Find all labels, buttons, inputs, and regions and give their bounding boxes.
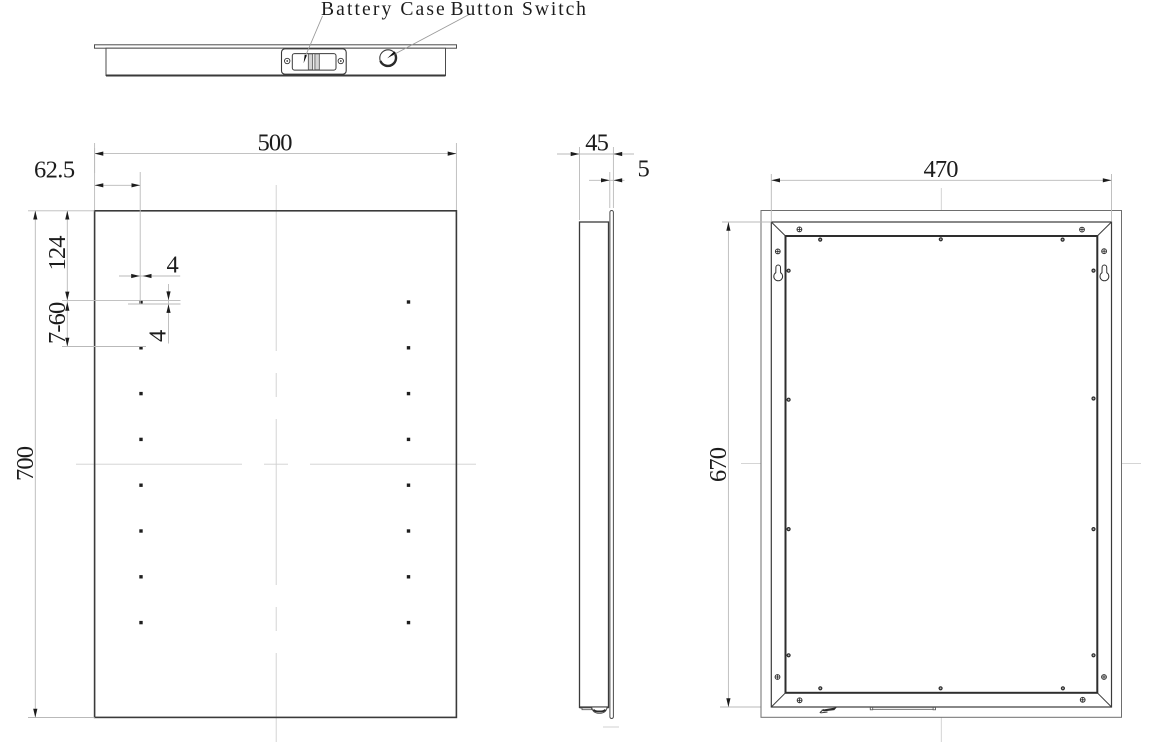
svg-text:7-60: 7-60 (44, 302, 71, 344)
svg-text:62.5: 62.5 (34, 157, 75, 184)
svg-text:670: 670 (705, 447, 732, 482)
svg-text:500: 500 (258, 130, 293, 157)
svg-text:124: 124 (44, 236, 71, 271)
svg-text:5: 5 (638, 156, 650, 183)
svg-text:4: 4 (145, 330, 172, 342)
svg-text:470: 470 (924, 156, 959, 183)
svg-text:Battery Case: Battery Case (321, 0, 447, 20)
svg-text:45: 45 (585, 130, 608, 157)
svg-text:Button Switch: Button Switch (451, 0, 588, 20)
svg-text:4: 4 (167, 252, 179, 279)
svg-text:700: 700 (12, 446, 39, 481)
